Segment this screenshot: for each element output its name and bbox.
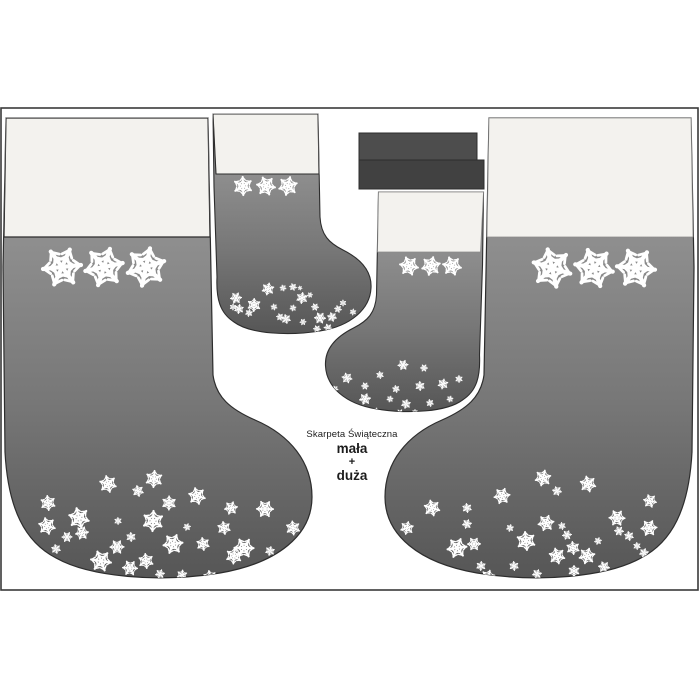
label-size-small: mała: [292, 441, 412, 456]
pattern-panel: [0, 107, 700, 592]
stocking-small-left-cuff: [213, 114, 319, 174]
stocking-large-left-cuff: [4, 118, 210, 237]
fabric-strip-bottom: [359, 160, 484, 189]
stocking-small-right-cuff: [378, 192, 484, 252]
label-size-large: duża: [292, 468, 412, 483]
stocking-large-right-cuff: [487, 118, 693, 237]
pattern-sheet: Skarpeta Świąteczna mała + duża: [0, 0, 700, 700]
pattern-canvas: [0, 107, 700, 592]
pattern-label: Skarpeta Świąteczna mała + duża: [292, 429, 412, 483]
fabric-strip-top: [359, 133, 477, 160]
label-product-name: Skarpeta Świąteczna: [292, 429, 412, 441]
label-plus-sign: +: [292, 456, 412, 468]
fabric-strips: [359, 133, 484, 189]
